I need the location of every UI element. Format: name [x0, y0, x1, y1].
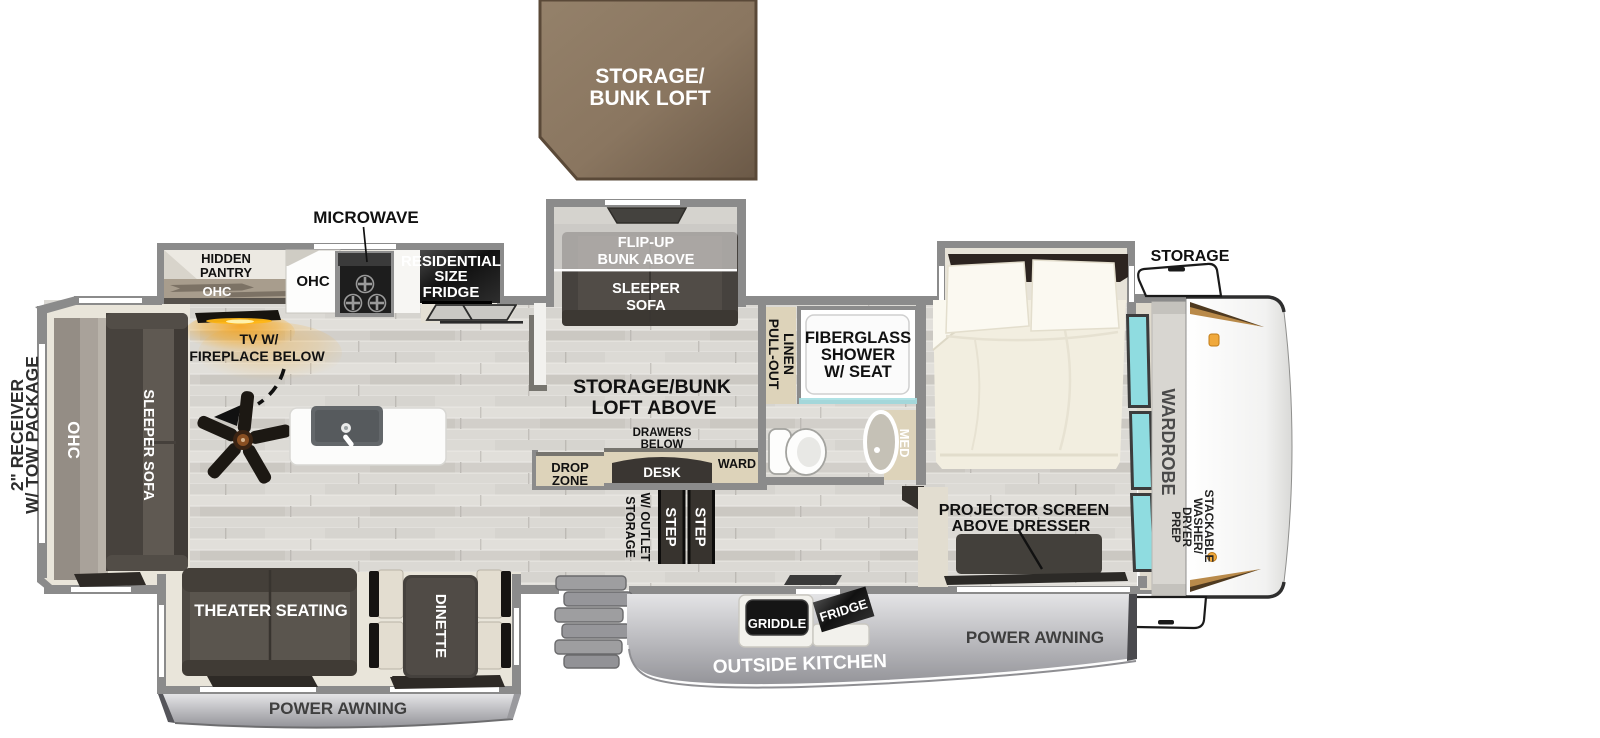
svg-text:HIDDEN: HIDDEN	[201, 251, 251, 266]
svg-text:W/ SEAT: W/ SEAT	[824, 363, 892, 381]
svg-text:SOFA: SOFA	[626, 298, 666, 314]
svg-text:WASHER/: WASHER/	[1191, 498, 1205, 555]
svg-text:STORAGE/: STORAGE/	[595, 65, 704, 88]
svg-text:PULL-OUT: PULL-OUT	[766, 319, 782, 390]
svg-text:W/ TOW PACKAGE: W/ TOW PACKAGE	[22, 356, 42, 514]
svg-text:BELOW: BELOW	[641, 439, 684, 451]
svg-text:FRIDGE: FRIDGE	[423, 284, 480, 301]
svg-text:GRIDDLE: GRIDDLE	[748, 616, 807, 631]
svg-text:LINEN: LINEN	[781, 333, 797, 375]
svg-text:SHOWER: SHOWER	[821, 346, 895, 364]
svg-text:OHC: OHC	[296, 273, 330, 290]
svg-text:OHC: OHC	[203, 284, 233, 299]
svg-text:STEP: STEP	[692, 507, 709, 546]
svg-text:DESK: DESK	[643, 465, 681, 480]
svg-text:W/ OUTLET: W/ OUTLET	[638, 493, 652, 562]
svg-text:STORAGE/BUNK: STORAGE/BUNK	[573, 376, 731, 398]
svg-text:FIREPLACE BELOW: FIREPLACE BELOW	[189, 348, 325, 364]
svg-text:DRAWERS: DRAWERS	[633, 427, 692, 439]
svg-text:BUNK LOFT: BUNK LOFT	[589, 87, 710, 110]
svg-text:STORAGE: STORAGE	[623, 496, 637, 558]
svg-text:POWER AWNING: POWER AWNING	[269, 699, 407, 718]
svg-text:STEP: STEP	[662, 507, 679, 546]
svg-text:WARDROBE: WARDROBE	[1158, 389, 1178, 496]
svg-text:FLIP-UP: FLIP-UP	[618, 235, 675, 251]
svg-text:SLEEPER SOFA: SLEEPER SOFA	[140, 389, 156, 501]
svg-text:WARD: WARD	[718, 457, 756, 471]
svg-text:SIZE: SIZE	[434, 268, 467, 285]
svg-text:TV W/: TV W/	[240, 331, 279, 347]
svg-text:LOFT ABOVE: LOFT ABOVE	[592, 397, 717, 419]
svg-text:POWER AWNING: POWER AWNING	[966, 628, 1104, 647]
svg-text:DINETTE: DINETTE	[432, 594, 449, 658]
svg-text:OHC: OHC	[64, 421, 83, 459]
svg-text:BUNK ABOVE: BUNK ABOVE	[598, 252, 695, 268]
svg-text:STORAGE: STORAGE	[1151, 248, 1230, 265]
svg-text:ZONE: ZONE	[552, 473, 588, 488]
svg-text:MICROWAVE: MICROWAVE	[313, 208, 418, 227]
svg-text:FIBERGLASS: FIBERGLASS	[805, 329, 911, 347]
svg-text:PROJECTOR SCREEN: PROJECTOR SCREEN	[939, 502, 1109, 519]
svg-text:ABOVE DRESSER: ABOVE DRESSER	[952, 518, 1091, 535]
svg-text:MED: MED	[897, 429, 912, 458]
svg-text:SLEEPER: SLEEPER	[612, 281, 680, 297]
svg-text:PREP: PREP	[1169, 511, 1181, 543]
svg-text:PANTRY: PANTRY	[200, 265, 252, 280]
svg-text:THEATER SEATING: THEATER SEATING	[194, 602, 347, 620]
